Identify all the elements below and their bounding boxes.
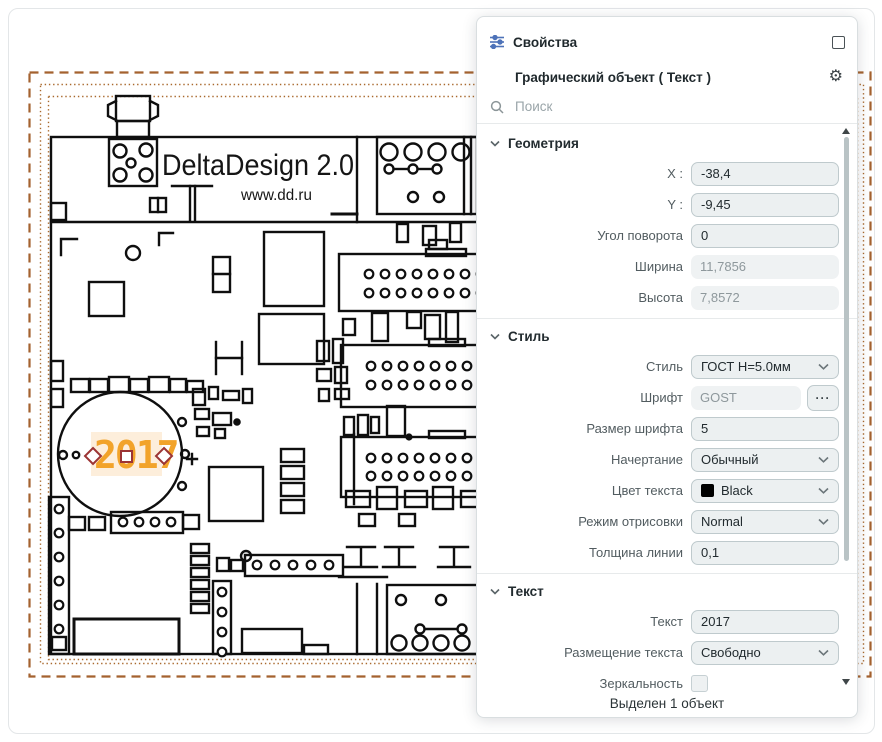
text-value-input[interactable]: 2017: [691, 610, 839, 634]
sliders-icon: [489, 35, 505, 49]
width-readonly-field: 11,7856: [691, 255, 839, 279]
property-row-y: Y : -9,45: [477, 189, 857, 220]
property-label: Шрифт: [487, 390, 691, 405]
search-icon: [490, 100, 504, 114]
chevron-down-icon: [818, 487, 829, 494]
selected-text-object[interactable]: 2017: [85, 432, 178, 477]
chevron-down-icon: [818, 518, 829, 525]
top-right-connector: [377, 137, 477, 214]
color-swatch: [701, 484, 714, 497]
property-label: Зеркальность: [487, 676, 691, 691]
rotation-input[interactable]: 0: [691, 224, 839, 248]
property-label: Размещение текста: [487, 645, 691, 660]
search-input[interactable]: [513, 98, 844, 115]
property-label: Размер шрифта: [487, 421, 691, 436]
idc-connector-b: [341, 339, 487, 407]
property-row-draw-mode: Режим отрисовки Normal: [477, 506, 857, 537]
property-row-font-size: Размер шрифта 5: [477, 413, 857, 444]
chevron-down-icon: [490, 140, 500, 147]
property-row-width: Ширина 11,7856: [477, 251, 857, 282]
draw-mode-dropdown[interactable]: Normal: [691, 510, 839, 534]
board-brand-text: DeltaDesign 2.0: [162, 149, 354, 183]
font-style-dropdown[interactable]: Обычный: [691, 448, 839, 472]
property-label: Угол поворота: [487, 228, 691, 243]
property-label: Y :: [487, 197, 691, 212]
search-row: [477, 90, 857, 124]
property-label: Режим отрисовки: [487, 514, 691, 529]
color-value: Black: [701, 483, 753, 498]
bolt-connector: [108, 96, 158, 137]
property-label: Начертание: [487, 452, 691, 467]
property-row-x: X : -38,4: [477, 158, 857, 189]
x-input[interactable]: -38,4: [691, 162, 839, 186]
selection-status: Выделен 1 объект: [477, 696, 857, 711]
section-title: Геометрия: [508, 136, 579, 151]
chevron-down-icon: [490, 588, 500, 595]
gear-icon[interactable]: ⚙: [829, 69, 843, 85]
scrollbar-down-arrow[interactable]: [842, 679, 850, 685]
property-label: Высота: [487, 290, 691, 305]
panel-content: Геометрия X : -38,4 Y : -9,45 Угол повор…: [477, 124, 857, 699]
property-row-font: Шрифт GOST ···: [477, 382, 857, 413]
section-divider: [477, 573, 857, 574]
properties-panel: Свойства Графический объект ( Текст ) ⚙ …: [476, 16, 858, 718]
property-row-line-width: Толщина линии 0,1: [477, 537, 857, 568]
scrollbar-thumb[interactable]: [844, 137, 849, 561]
property-row-text-value: Текст 2017: [477, 606, 857, 637]
chevron-down-icon: [818, 649, 829, 656]
board-url-text: www.dd.ru: [240, 187, 312, 204]
object-header: Графический объект ( Текст ) ⚙: [477, 59, 857, 87]
property-label: X :: [487, 166, 691, 181]
height-readonly-field: 7,8572: [691, 286, 839, 310]
chevron-down-icon: [818, 456, 829, 463]
chevron-down-icon: [818, 363, 829, 370]
property-row-font-style: Начертание Обычный: [477, 444, 857, 475]
font-size-input[interactable]: 5: [691, 417, 839, 441]
section-title: Стиль: [508, 329, 550, 344]
font-browse-button[interactable]: ···: [807, 385, 839, 411]
property-row-mirror: Зеркальность: [477, 668, 857, 699]
section-header-style[interactable]: Стиль: [477, 322, 857, 351]
mounting-pad-square: [109, 139, 157, 186]
text-color-dropdown[interactable]: Black: [691, 479, 839, 503]
property-row-text-color: Цвет текста Black: [477, 475, 857, 506]
app-window: DeltaDesign 2.0 www.dd.ru 2017: [0, 0, 882, 742]
line-width-input[interactable]: 0,1: [691, 541, 839, 565]
property-label: Цвет текста: [487, 483, 691, 498]
ibeam-symbols: [345, 547, 470, 567]
text-placement-dropdown[interactable]: Свободно: [691, 641, 839, 665]
bottom-right-connector: [387, 585, 487, 654]
style-dropdown[interactable]: ГОСТ H=5.0мм: [691, 355, 839, 379]
property-row-style: Стиль ГОСТ H=5.0мм: [477, 351, 857, 382]
property-row-text-placement: Размещение текста Свободно: [477, 637, 857, 668]
float-window-icon[interactable]: [832, 36, 845, 49]
object-type-title: Графический объект ( Текст ): [515, 70, 829, 85]
scrollbar-up-arrow[interactable]: [842, 128, 850, 134]
section-header-text[interactable]: Текст: [477, 577, 857, 606]
section-title: Текст: [508, 584, 544, 599]
y-input[interactable]: -9,45: [691, 193, 839, 217]
mirror-checkbox[interactable]: [691, 675, 708, 692]
property-row-rotation: Угол поворота 0: [477, 220, 857, 251]
property-row-height: Высота 7,8572: [477, 282, 857, 313]
property-label: Толщина линии: [487, 545, 691, 560]
section-divider: [477, 318, 857, 319]
idc-connector-a: [339, 249, 487, 311]
property-label: Ширина: [487, 259, 691, 274]
font-readonly-field: GOST: [691, 386, 801, 410]
property-label: Текст: [487, 614, 691, 629]
section-header-geometry[interactable]: Геометрия: [477, 129, 857, 158]
panel-header: Свойства: [477, 17, 857, 59]
panel-title: Свойства: [513, 35, 824, 50]
chevron-down-icon: [490, 333, 500, 340]
idc-connector-c: [341, 431, 487, 497]
property-label: Стиль: [487, 359, 691, 374]
